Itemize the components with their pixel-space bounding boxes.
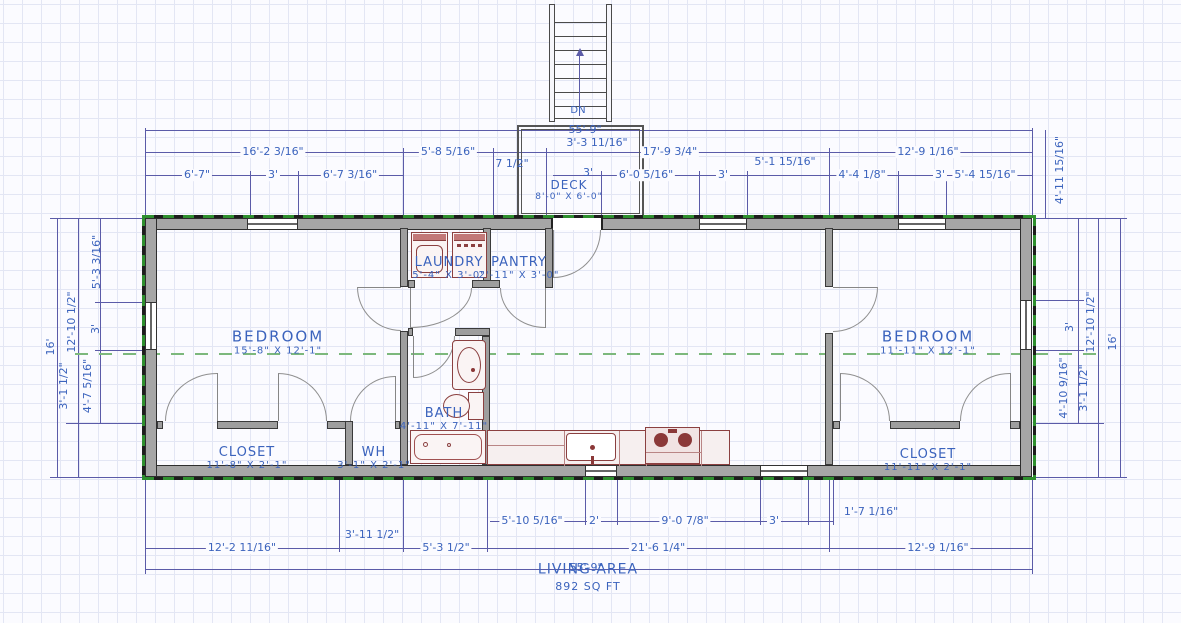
room-name: DECK (535, 178, 603, 192)
room-label-bedroom-right: BEDROOM 11'-11" X 12'-1" (880, 328, 976, 357)
bath-sink-bowl (457, 347, 481, 383)
sink-drain (590, 445, 595, 450)
wall-closet-right-a (833, 421, 840, 429)
extension-line (66, 423, 143, 424)
dim-top3-i: 4'-4 1/8" (836, 169, 887, 181)
extension-line (339, 479, 340, 552)
room-dims: 11'-11" X 2'-1" (884, 462, 972, 473)
extension-line (95, 350, 143, 351)
stair-tread (555, 78, 606, 79)
wall-hall-right-upper (825, 228, 833, 287)
wall-bath-top-b (455, 328, 490, 336)
dim-bottom1-c: 9'-0 7/8" (659, 515, 710, 527)
counter-divider (701, 431, 702, 466)
wall-hall-left-upper (400, 228, 408, 287)
stair-direction-arrow (576, 48, 584, 56)
closet-right-door1-swing (840, 373, 890, 421)
closet-right-door2-leaf (1010, 373, 1011, 421)
dim-line-deck-height (1045, 130, 1046, 218)
extension-line (699, 171, 700, 216)
window-top-center (699, 218, 747, 230)
extension-line (1034, 423, 1104, 424)
dim-top3-b: 3' (266, 169, 280, 181)
extension-line (898, 171, 899, 216)
room-name: BATH (400, 406, 488, 421)
dryer-controls (457, 244, 482, 247)
room-dims: 2'-11" X 3'-0" (479, 270, 560, 281)
wall-closet-left-b (217, 421, 278, 429)
dim-right-inner-bot: 4'-10 9/16" (1058, 357, 1070, 418)
dim-left-overall: 16' (45, 338, 57, 355)
bathtub-knob (447, 443, 451, 447)
dim-left-lower: 3'-1 1/2" (58, 362, 70, 409)
extension-line (829, 479, 830, 552)
room-dims: 11'-8" X 2'-1" (207, 460, 288, 471)
window-left-bedroom (145, 302, 157, 350)
dim-top2-e: 12'-9 1/16" (895, 146, 960, 158)
laundry-door-swing (410, 288, 472, 328)
room-label-wh: WH 3'-1" X 2'-1" (337, 445, 411, 471)
kitchen-sink (566, 433, 616, 461)
room-dims: 3'-1" X 2'-1" (337, 460, 411, 471)
extension-line (1034, 477, 1127, 478)
extension-line (1032, 128, 1033, 216)
stove-burner (678, 433, 692, 447)
exterior-dashed-right (1033, 215, 1036, 480)
extension-line (403, 148, 404, 216)
dim-top3-k: 5'-4 15/16" (952, 169, 1017, 181)
extension-line (829, 148, 830, 216)
dim-line-right-mid (1098, 218, 1099, 477)
stair-tread (555, 92, 606, 93)
room-label-pantry: PANTRY 2'-11" X 3'-0" (479, 255, 560, 281)
room-name: CLOSET (207, 445, 288, 460)
dim-right-upper: 12'-10 1/2" (1085, 291, 1097, 352)
window-bottom-right (760, 465, 808, 477)
closet-left-door1-swing (165, 373, 217, 421)
counter-divider (619, 431, 620, 466)
pantry-door-swing (500, 288, 545, 328)
dim-right-overall: 16' (1107, 333, 1119, 350)
stair-down-label: DN (568, 106, 587, 117)
dim-bottom2-d: 21'-6 1/4" (629, 542, 687, 554)
extension-line (50, 218, 143, 219)
dim-top2-a: 16'-2 3/16" (240, 146, 305, 158)
extension-line (250, 171, 251, 216)
stair-tread (555, 64, 606, 65)
room-dims: 15'-8" X 12'-1" (232, 346, 324, 357)
dim-right-inner-mid: 3' (1064, 322, 1076, 332)
room-name: PANTRY (479, 255, 560, 270)
closet-left-door1-leaf (217, 373, 218, 421)
room-label-laundry: LAUNDRY 5'-4" X 3'-0" (412, 255, 486, 281)
wall-laundry-bottom-b (472, 280, 500, 288)
exterior-dashed-bottom (143, 477, 1034, 480)
dim-bottom2-a: 12'-2 11/16" (206, 542, 278, 554)
deck-door-swing (553, 230, 601, 278)
stove-burner (654, 433, 668, 447)
dim-bottom1-a: 5'-10 5/16" (499, 515, 564, 527)
extension-line (1034, 350, 1084, 351)
room-label-closet-left: CLOSET 11'-8" X 2'-1" (207, 445, 288, 471)
dim-bottom2-e: 12'-9 1/16" (905, 542, 970, 554)
counter-edge-line (488, 445, 564, 446)
wall-hall-right-lower (825, 333, 833, 465)
room-label-closet-right: CLOSET 11'-11" X 2'-1" (884, 447, 972, 473)
closet-left-door2-swing (278, 373, 327, 421)
dim-left-inner-top: 5'-3 3/16" (91, 235, 103, 289)
extension-line (145, 128, 146, 216)
room-label-bath: BATH 4'-11" X 7'-11" (400, 406, 488, 432)
room-name: BEDROOM (232, 328, 324, 346)
dim-overall-bottom: 55'-9" (567, 562, 604, 574)
extension-line (298, 171, 299, 216)
dim-right-lower: 3'-1 1/2" (1078, 364, 1090, 411)
window-top-left-bedroom (247, 218, 298, 230)
dim-top3-j: 3' (933, 169, 947, 181)
window-right-bedroom (1020, 300, 1032, 350)
dim-top2-b: 5'-8 5/16" (419, 146, 477, 158)
stove (645, 427, 700, 464)
extension-line (747, 171, 748, 216)
dryer-top-panel (454, 234, 485, 241)
dim-top3-c: 6'-7 3/16" (321, 169, 379, 181)
dim-bottom1-b: 2' (587, 515, 601, 527)
bathtub-inner (414, 434, 482, 460)
bath-sink-drain (471, 368, 475, 372)
extension-line (1032, 479, 1033, 574)
dim-top2-c: 3'-3 11/16" (564, 137, 629, 149)
dim-top3-g: 3' (716, 169, 730, 181)
room-dims: 4'-11" X 7'-11" (400, 421, 488, 432)
dim-top3-a: 6'-7" (182, 169, 212, 181)
stair-rail-right (606, 4, 612, 122)
room-dims: 11'-11" X 12'-1" (880, 346, 976, 357)
window-kitchen-sink (585, 465, 617, 477)
wall-bath-top-a (408, 328, 413, 336)
stair-tread (555, 22, 606, 23)
wall-closet-left-a (157, 421, 163, 429)
wall-closet-right-b (890, 421, 960, 429)
dim-top2-d: 17'-9 3/4" (641, 146, 699, 158)
bath-sink-vanity (452, 340, 486, 390)
dim-top3-h: 5'-1 15/16" (752, 156, 817, 168)
extension-line (95, 302, 143, 303)
extension-line (833, 479, 834, 525)
deck-door-opening (551, 218, 603, 230)
extension-line (487, 479, 488, 552)
room-name: LAUNDRY (412, 255, 486, 270)
extension-line (760, 479, 761, 525)
dim-top3-d: 7 1/2" (493, 158, 530, 170)
window-top-right-bedroom (898, 218, 946, 230)
pantry-door-leaf (545, 288, 546, 328)
wh-door-leaf (395, 376, 396, 421)
washer-top-panel (413, 234, 446, 241)
extension-line (50, 477, 143, 478)
room-dims: 8'-0" X 6'-0" (535, 192, 603, 202)
room-name: CLOSET (884, 447, 972, 462)
stair-tread (555, 36, 606, 37)
dim-left-inner-bot: 4'-7 5/16" (82, 359, 94, 413)
dim-bottom1-d: 3' (767, 515, 781, 527)
bedroom-right-door-swing (833, 287, 878, 332)
dim-bottom2-b: 3'-11 1/2" (343, 529, 401, 541)
closet-right-door2-swing (960, 373, 1010, 421)
dim-bottom1-e: 1'-7 1/16" (842, 506, 900, 518)
bath-door-swing (413, 336, 455, 378)
dim-left-inner-mid: 3' (90, 324, 102, 334)
extension-line (403, 479, 404, 552)
wall-laundry-bottom-a (408, 280, 415, 288)
dim-line-right-overall (1120, 218, 1121, 477)
wh-door-swing (350, 376, 395, 421)
extension-line (808, 479, 809, 525)
counter-divider (564, 431, 565, 466)
bedroom-left-door-swing (357, 287, 401, 331)
stove-front-line (646, 452, 701, 453)
room-label-deck: DECK 8'-0" X 6'-0" (535, 178, 603, 202)
living-area-sqft: 892 SQ FT (553, 581, 622, 593)
room-name: WH (337, 445, 411, 460)
dim-top3-f: 6'-0 5/16" (617, 169, 675, 181)
dim-left-upper: 12'-10 1/2" (66, 291, 78, 352)
stove-control-panel (668, 429, 677, 433)
bathtub-knob (423, 442, 428, 447)
dim-bottom2-c: 5'-3 1/2" (420, 542, 471, 554)
room-label-bedroom-left: BEDROOM 15'-8" X 12'-1" (232, 328, 324, 357)
room-name: BEDROOM (880, 328, 976, 346)
dim-overall-top: 55'-9" (566, 124, 603, 136)
wall-closet-right-c (1010, 421, 1020, 429)
bathtub (410, 430, 486, 464)
dim-top3-e: 3' (581, 167, 595, 179)
room-dims: 5'-4" X 3'-0" (412, 270, 486, 281)
floor-plan-canvas: DN (0, 0, 1181, 623)
extension-line (1034, 300, 1084, 301)
extension-line (585, 479, 586, 525)
extension-line (617, 479, 618, 525)
stair-tread (555, 118, 606, 119)
extension-line (1034, 218, 1127, 219)
extension-line (145, 479, 146, 574)
dim-right-deck-height: 4'-11 15/16" (1054, 136, 1066, 204)
sink-faucet (591, 456, 594, 464)
